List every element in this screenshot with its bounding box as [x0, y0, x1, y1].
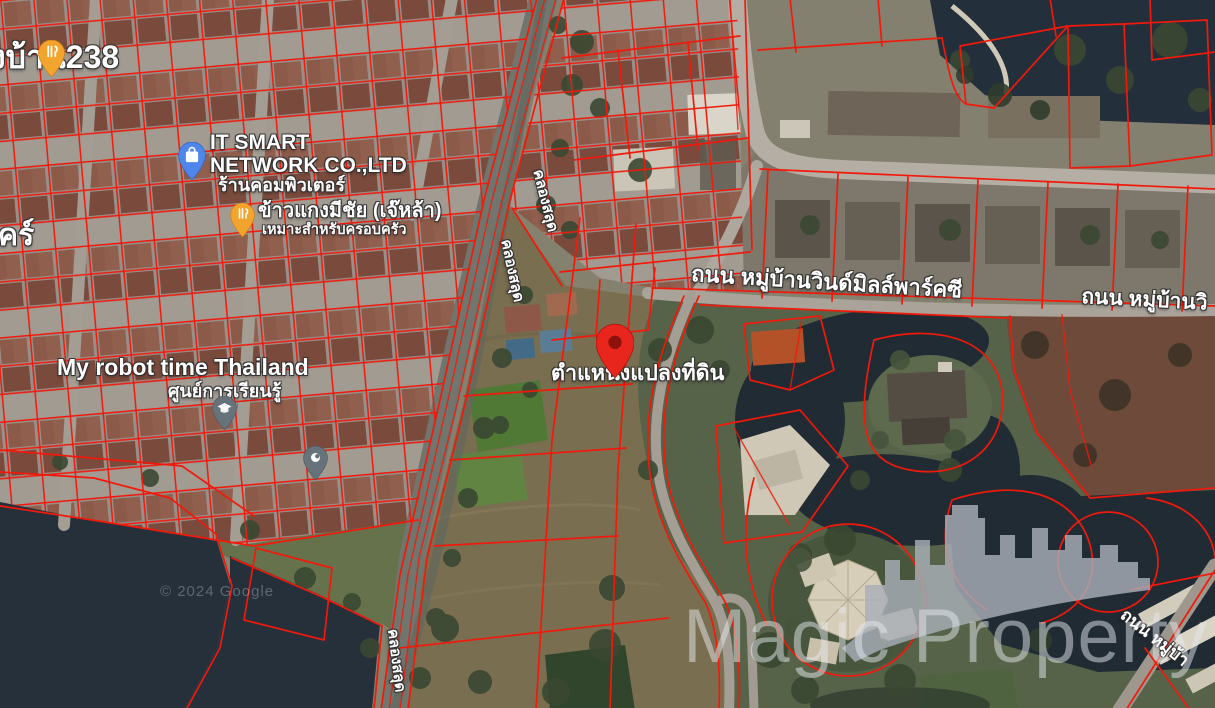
poi-sublabel-it-smart: ร้านคอมพิวเตอร์: [218, 176, 345, 195]
restaurant-pin-icon[interactable]: [230, 203, 255, 237]
shop-pin-icon[interactable]: [178, 142, 206, 180]
poi-label-it-smart-line1: IT SMART: [210, 132, 407, 155]
poi-label-restaurant[interactable]: ข้าวแกงมีชัย (เจ๊หล้า): [258, 201, 441, 223]
poi-label-robot-school[interactable]: My robot time Thailand: [57, 355, 309, 380]
watermark-text: Magic Property: [683, 593, 1208, 680]
poi-label-it-smart[interactable]: IT SMART NETWORK CO.,LTD: [210, 132, 407, 177]
map-viewport[interactable]: งบ้าน238 คร์ IT SMART NETWORK CO.,LTD ร้…: [0, 0, 1215, 708]
restaurant-pin-icon-top[interactable]: [38, 40, 65, 77]
poi-pin-icon[interactable]: [303, 446, 328, 480]
poi-label-left-partial[interactable]: คร์: [0, 220, 34, 252]
poi-sublabel-restaurant: เหมาะสำหรับครอบครัว: [262, 223, 407, 239]
school-pin-icon[interactable]: [212, 396, 237, 430]
marker-label: ตำแหน่งแปลงที่ดิน: [551, 362, 724, 385]
poi-label-it-smart-line2: NETWORK CO.,LTD: [210, 155, 407, 178]
subject-location-pin-icon[interactable]: [596, 320, 634, 382]
map-attribution: © 2024 Google: [160, 583, 274, 600]
